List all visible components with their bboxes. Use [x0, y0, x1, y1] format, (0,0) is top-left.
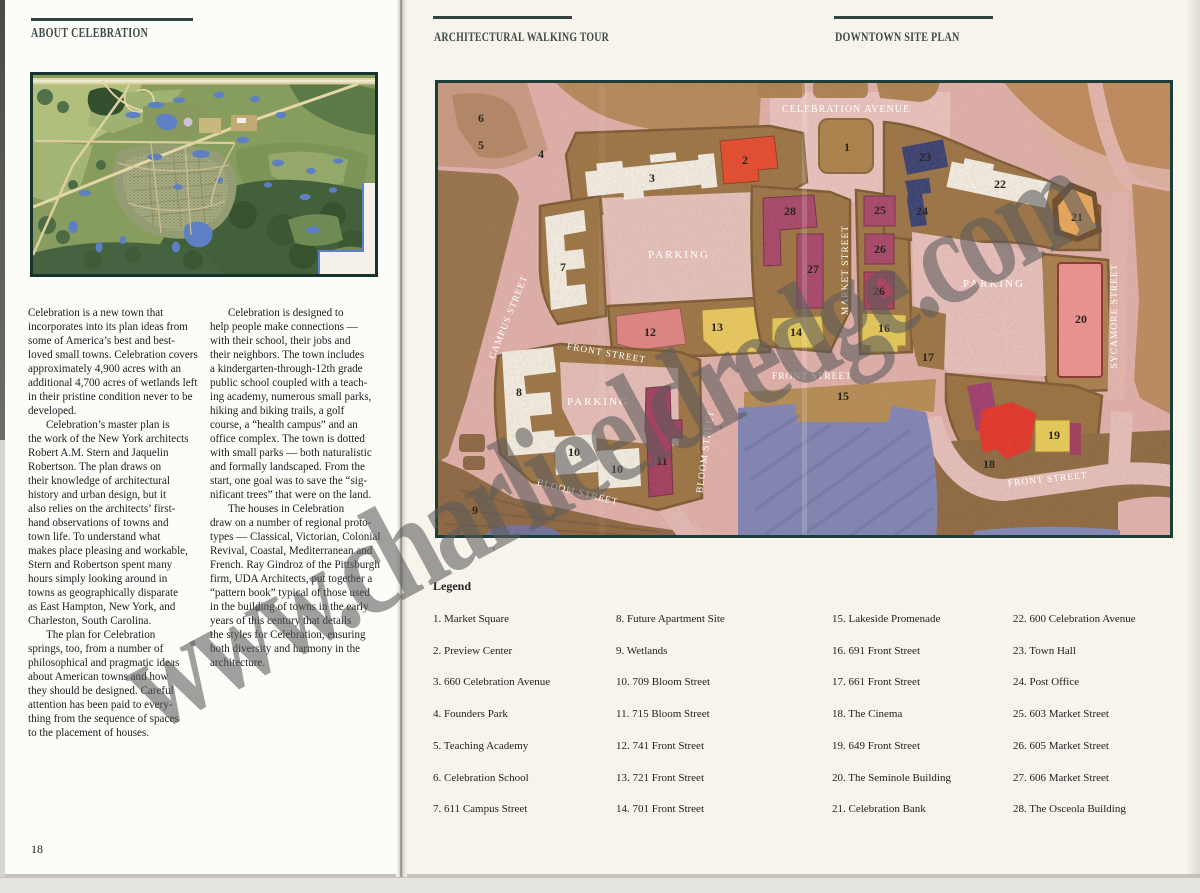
svg-text:1: 1	[844, 140, 850, 154]
svg-text:SYCAMORE STREET: SYCAMORE STREET	[1110, 264, 1120, 369]
svg-text:CELEBRATION AVENUE: CELEBRATION AVENUE	[782, 104, 910, 115]
svg-text:7: 7	[560, 260, 566, 274]
svg-text:6: 6	[478, 111, 484, 125]
svg-text:2: 2	[742, 153, 748, 167]
svg-text:3: 3	[649, 171, 655, 185]
svg-text:20: 20	[1075, 312, 1087, 326]
svg-text:28: 28	[784, 204, 796, 218]
svg-text:23: 23	[919, 150, 931, 164]
svg-text:5: 5	[478, 138, 484, 152]
svg-text:19: 19	[1048, 428, 1060, 442]
svg-text:18: 18	[983, 457, 995, 471]
svg-text:4: 4	[538, 147, 544, 161]
svg-text:PARKING: PARKING	[648, 249, 710, 261]
